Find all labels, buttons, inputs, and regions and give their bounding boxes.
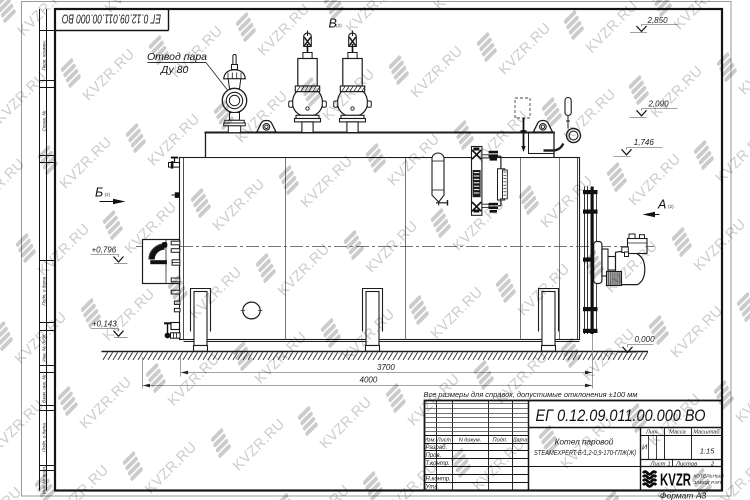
svg-text:0,000: 0,000 [635, 335, 656, 344]
svg-text:Справ. №: Справ. № [42, 111, 47, 132]
svg-text:А: А [657, 198, 666, 212]
svg-text:Утв.: Утв. [425, 484, 440, 490]
svg-text:Лист: Лист [650, 461, 666, 467]
svg-text:Разраб.: Разраб. [426, 445, 448, 451]
svg-text:4000: 4000 [360, 376, 378, 385]
svg-text:Подп. и дата: Подп. и дата [42, 276, 47, 305]
svg-text:И: И [642, 443, 648, 452]
svg-text:1:15: 1:15 [700, 447, 715, 456]
svg-text:Все размеры для справок, допу: Все размеры для справок, допустимые откл… [424, 390, 638, 399]
svg-text:Подп.: Подп. [493, 438, 508, 444]
svg-text:1: 1 [668, 461, 671, 467]
svg-text:Лист: Лист [436, 438, 452, 444]
svg-text:Перв. примен.: Перв. примен. [42, 40, 47, 71]
svg-text:(2): (2) [105, 192, 111, 197]
svg-text:1,746: 1,746 [634, 138, 655, 147]
svg-text:Подп. и дата: Подп. и дата [42, 423, 47, 452]
svg-text:Масштаб: Масштаб [693, 429, 720, 435]
svg-text:Б: Б [95, 186, 103, 200]
svg-text:3700: 3700 [377, 363, 395, 372]
svg-text:Пров.: Пров. [426, 453, 442, 459]
svg-text:2,850: 2,850 [647, 16, 669, 25]
svg-text:N докум.: N докум. [459, 438, 482, 444]
svg-text:(2): (2) [668, 204, 674, 209]
svg-text:Взам. инв. №: Взам. инв. № [42, 375, 47, 403]
svg-text:Изм.: Изм. [424, 438, 436, 444]
svg-text:Листов: Листов [675, 461, 697, 467]
svg-text:(2): (2) [336, 23, 342, 28]
svg-text:+0,796: +0,796 [92, 245, 117, 254]
